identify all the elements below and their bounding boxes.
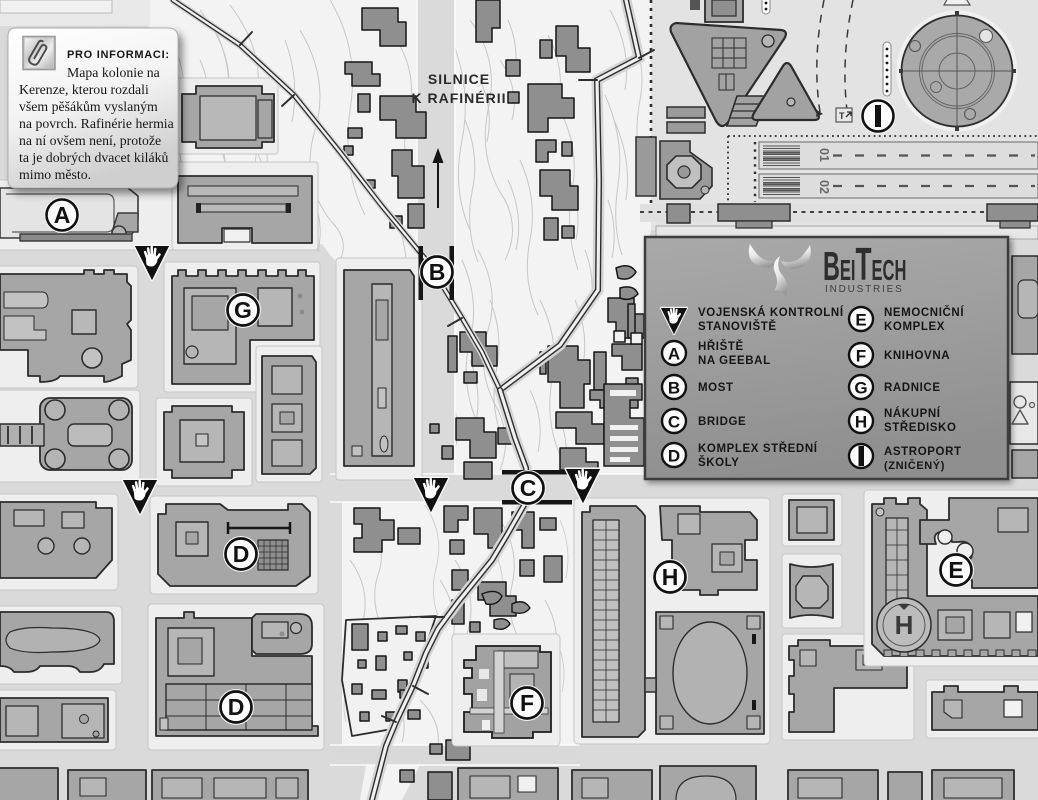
- svg-text:B: B: [668, 379, 680, 398]
- svg-text:SILNICE: SILNICE: [428, 71, 490, 87]
- svg-text:BRIDGE: BRIDGE: [698, 416, 746, 428]
- svg-text:(ZNIČENÝ): (ZNIČENÝ): [884, 459, 945, 472]
- svg-text:ŠKOLY: ŠKOLY: [698, 456, 740, 469]
- svg-text:A: A: [54, 202, 71, 228]
- svg-text:H: H: [855, 413, 867, 432]
- svg-text:KOMPLEX: KOMPLEX: [884, 321, 945, 333]
- svg-text:C: C: [520, 475, 537, 501]
- svg-text:PRO INFORMACI:: PRO INFORMACI:: [67, 49, 170, 61]
- svg-text:ASTROPORT: ASTROPORT: [884, 446, 962, 458]
- svg-text:NA GEEBAL: NA GEEBAL: [698, 355, 771, 367]
- svg-text:D: D: [228, 694, 245, 720]
- svg-text:STANOVIŠTĚ: STANOVIŠTĚ: [698, 320, 777, 333]
- svg-text:C: C: [668, 413, 680, 432]
- svg-text:Mapa kolonie na: Mapa kolonie na: [67, 65, 160, 80]
- svg-text:na povrch. Rafinérie hermia: na povrch. Rafinérie hermia: [19, 116, 174, 131]
- svg-text:mimo město.: mimo město.: [19, 167, 91, 182]
- svg-text:na ní ovšem není, protože: na ní ovšem není, protože: [19, 133, 161, 148]
- svg-text:ta je dobrých dvacet kiláků: ta je dobrých dvacet kiláků: [19, 150, 169, 165]
- svg-text:A: A: [668, 345, 680, 364]
- svg-text:F: F: [856, 347, 866, 366]
- svg-text:HŘIŠTĚ: HŘIŠTĚ: [698, 340, 744, 353]
- svg-text:STŘEDISKO: STŘEDISKO: [884, 421, 957, 434]
- svg-text:G: G: [854, 379, 867, 398]
- svg-text:KOMPLEX STŘEDNÍ: KOMPLEX STŘEDNÍ: [698, 442, 818, 455]
- svg-text:KNIHOVNA: KNIHOVNA: [884, 350, 950, 362]
- svg-text:K RAFINÉRII: K RAFINÉRII: [412, 90, 507, 106]
- svg-text:NÁKUPNÍ: NÁKUPNÍ: [884, 407, 941, 420]
- svg-text:MOST: MOST: [698, 382, 734, 394]
- svg-text:D: D: [233, 541, 250, 567]
- svg-text:G: G: [234, 297, 252, 323]
- svg-text:NEMOCNIČNÍ: NEMOCNIČNÍ: [884, 306, 964, 319]
- svg-text:VOJENSKÁ KONTROLNÍ: VOJENSKÁ KONTROLNÍ: [698, 306, 844, 319]
- svg-text:D: D: [668, 447, 680, 466]
- svg-text:B: B: [429, 259, 446, 285]
- svg-text:INDUSTRIES: INDUSTRIES: [825, 284, 904, 295]
- svg-text:Kerenze, kterou rozdali: Kerenze, kterou rozdali: [19, 82, 149, 97]
- svg-text:H: H: [662, 564, 679, 590]
- svg-text:všem pěšákům vyslaným: všem pěšákům vyslaným: [19, 99, 158, 114]
- svg-text:H: H: [895, 610, 914, 640]
- svg-text:E: E: [948, 557, 963, 583]
- svg-text:01: 01: [817, 148, 831, 162]
- svg-text:RADNICE: RADNICE: [884, 382, 941, 394]
- svg-text:T: T: [839, 111, 845, 121]
- svg-text:E: E: [855, 311, 866, 330]
- svg-text:02: 02: [817, 180, 831, 194]
- svg-text:F: F: [520, 690, 534, 716]
